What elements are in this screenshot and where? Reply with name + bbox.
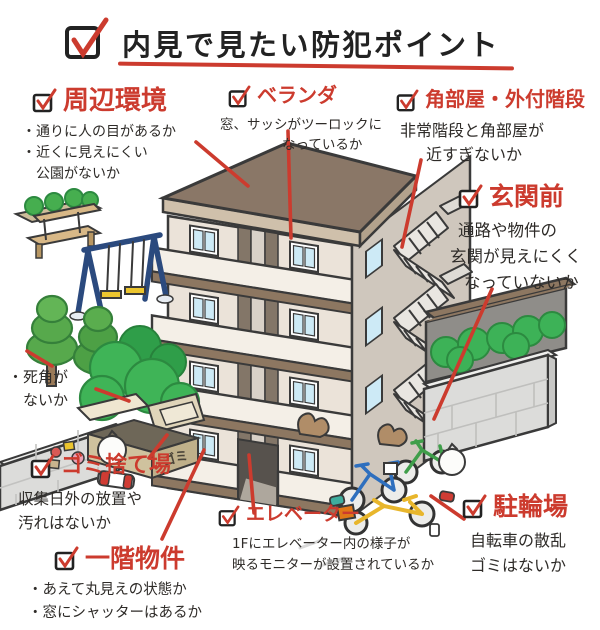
note-line: ・通りに人の目があるか	[22, 122, 176, 143]
title-block: 内見で見たい防犯ポイント	[64, 16, 500, 64]
note-bicycle-parking: 駐輪場 自転車の散乱 ゴミはないか	[462, 494, 568, 578]
note-corner-room: 角部屋・外付階段 非常階段と角部屋が 近すぎないか	[396, 89, 585, 167]
checkbox-icon	[396, 89, 418, 113]
swing-seat	[101, 291, 121, 298]
checkbox-icon	[462, 494, 486, 520]
entrance-opening	[238, 439, 278, 505]
note-line: ないか	[8, 389, 68, 412]
checkbox-icon	[32, 88, 56, 114]
note-garbage-area-heading: ゴミ捨て場	[61, 454, 171, 477]
note-elevator-heading: エレベーター	[246, 505, 360, 525]
note-first-floor: 一階物件 ・あえて丸見えの状態か ・窓にシャッターはあるか	[28, 546, 202, 625]
note-line: 映るモニターが設置されているか	[232, 555, 434, 576]
note-entrance-front: 玄関前 通路や物件の 玄関が見えにくく なっていないか	[450, 184, 582, 296]
note-line: 窓、サッシがツーロックに	[220, 115, 382, 135]
checkbox-icon	[218, 505, 239, 528]
note-line: 非常階段と角部屋が	[400, 119, 585, 143]
note-line: ゴミはないか	[470, 553, 568, 578]
checkbox-icon	[458, 184, 482, 210]
checkbox-icon	[228, 85, 250, 109]
note-veranda-heading: ベランダ	[257, 85, 337, 106]
note-entrance-front-heading: 玄関前	[489, 184, 564, 210]
note-line: 汚れはないか	[18, 511, 171, 535]
window	[290, 378, 318, 408]
window	[190, 226, 218, 256]
note-line: 玄関が見えにくく	[450, 244, 582, 270]
window	[290, 446, 318, 476]
window	[290, 242, 318, 272]
window	[290, 310, 318, 340]
note-elevator: エレベーター 1Fにエレベーター内の様子が 映るモニターが設置されているか	[218, 505, 434, 576]
side-windows	[366, 240, 382, 414]
infographic-canvas: ゴミ	[0, 0, 600, 630]
note-line: 近すぎないか	[426, 143, 585, 167]
note-surroundings: 周辺環境 ・通りに人の目があるか ・近くに見えにくい 公園がないか	[22, 88, 176, 185]
trash-bag	[439, 449, 465, 475]
note-veranda: ベランダ 窓、サッシがツーロックに なっているか	[220, 85, 382, 155]
note-line: 自転車の散乱	[470, 528, 568, 553]
bike-basket	[384, 463, 397, 474]
note-corner-room-heading: 角部屋・外付階段	[425, 89, 585, 110]
title-checkbox-icon	[64, 16, 108, 62]
note-line: ・窓にシャッターはあるか	[28, 602, 202, 625]
note-line: なっているか	[282, 135, 382, 155]
note-bicycle-parking-heading: 駐輪場	[493, 494, 568, 520]
checkbox-icon	[54, 546, 78, 572]
note-line: ・死角が	[8, 366, 68, 389]
note-line: なっていないか	[464, 270, 582, 296]
note-line: 公園がないか	[22, 164, 176, 185]
note-first-floor-heading: 一階物件	[85, 546, 185, 572]
swing-seat	[125, 287, 145, 294]
note-line: ・近くに見えにくい	[22, 143, 176, 164]
note-surroundings-heading: 周辺環境	[63, 88, 167, 115]
note-garbage-area: ゴミ捨て場 収集日外の放置や 汚れはないか	[18, 454, 171, 535]
note-line: 通路や物件の	[458, 218, 582, 244]
note-line: 収集日外の放置や	[18, 487, 171, 511]
page-title: 内見で見たい防犯ポイント	[122, 16, 500, 64]
note-line: 1Fにエレベーター内の様子が	[232, 534, 434, 555]
checkbox-icon	[30, 454, 54, 480]
note-blind-spot: ・死角が ないか	[8, 366, 68, 412]
window	[190, 362, 218, 392]
window	[190, 294, 218, 324]
note-line: ・あえて丸見えの状態か	[28, 579, 202, 602]
